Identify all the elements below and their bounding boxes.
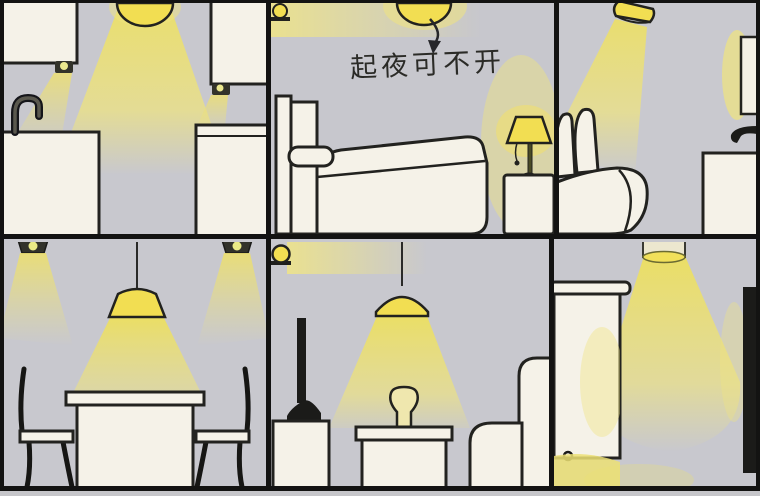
chair-right-seat (196, 431, 249, 442)
divider-horizontal (0, 234, 760, 239)
downlight-lens (643, 252, 685, 263)
panel-living-room (271, 242, 549, 488)
divider-vertical-bottom-2 (549, 237, 554, 490)
wall-sconce (273, 246, 290, 263)
bed-blanket (317, 137, 487, 234)
headboard (276, 96, 291, 234)
sofa-armrest (470, 423, 522, 488)
pillow (289, 147, 333, 166)
tv-stand (273, 421, 329, 488)
divider-vertical-top-2 (554, 0, 559, 237)
panel-bathroom (559, 3, 757, 234)
wall-cabinet-left (3, 3, 77, 63)
wardrobe-top (554, 282, 630, 294)
toilet-lid (559, 114, 575, 177)
border-left (0, 0, 4, 491)
sink-counter (3, 132, 99, 234)
base-cabinet (196, 125, 266, 234)
wall-lamp (273, 4, 287, 18)
divider-vertical-top-1 (266, 0, 271, 237)
headboard-step (291, 102, 317, 234)
sconce-glow (287, 242, 427, 274)
dining-table-base (77, 405, 193, 488)
panel-bedroom (271, 3, 554, 234)
light-bulb (60, 62, 68, 70)
panel-dining-room (3, 242, 266, 488)
handwritten-annotation: 起夜可不开 (349, 38, 541, 88)
wall-screen (743, 287, 757, 473)
nightstand (504, 175, 554, 234)
divider-vertical-bottom-1 (266, 237, 271, 490)
border-top (0, 0, 760, 3)
toilet-seat (575, 109, 598, 173)
chair-left-seat (20, 431, 73, 442)
light-bulb (217, 85, 224, 92)
lamp-pull-cord-tip (515, 161, 520, 166)
toilet-bowl (559, 168, 647, 234)
dining-table-top (66, 392, 204, 405)
panel-hallway (554, 242, 757, 488)
pendant-lamp-shade (109, 289, 165, 317)
bedside-table-lamp-shade (507, 117, 551, 143)
panel-kitchen (3, 3, 266, 234)
tv (297, 318, 306, 403)
bottom-margin-strip (0, 491, 760, 496)
bedside-lamp-stem (528, 143, 532, 175)
wall-cabinet-right (211, 3, 266, 84)
wardrobe-glow (580, 327, 624, 437)
vanity-cabinet (703, 153, 757, 234)
side-table-top (356, 427, 452, 440)
comic-grid: 起夜可不开 (0, 0, 760, 496)
border-right (756, 0, 760, 491)
mirror (741, 37, 757, 114)
side-table-base (362, 440, 446, 488)
